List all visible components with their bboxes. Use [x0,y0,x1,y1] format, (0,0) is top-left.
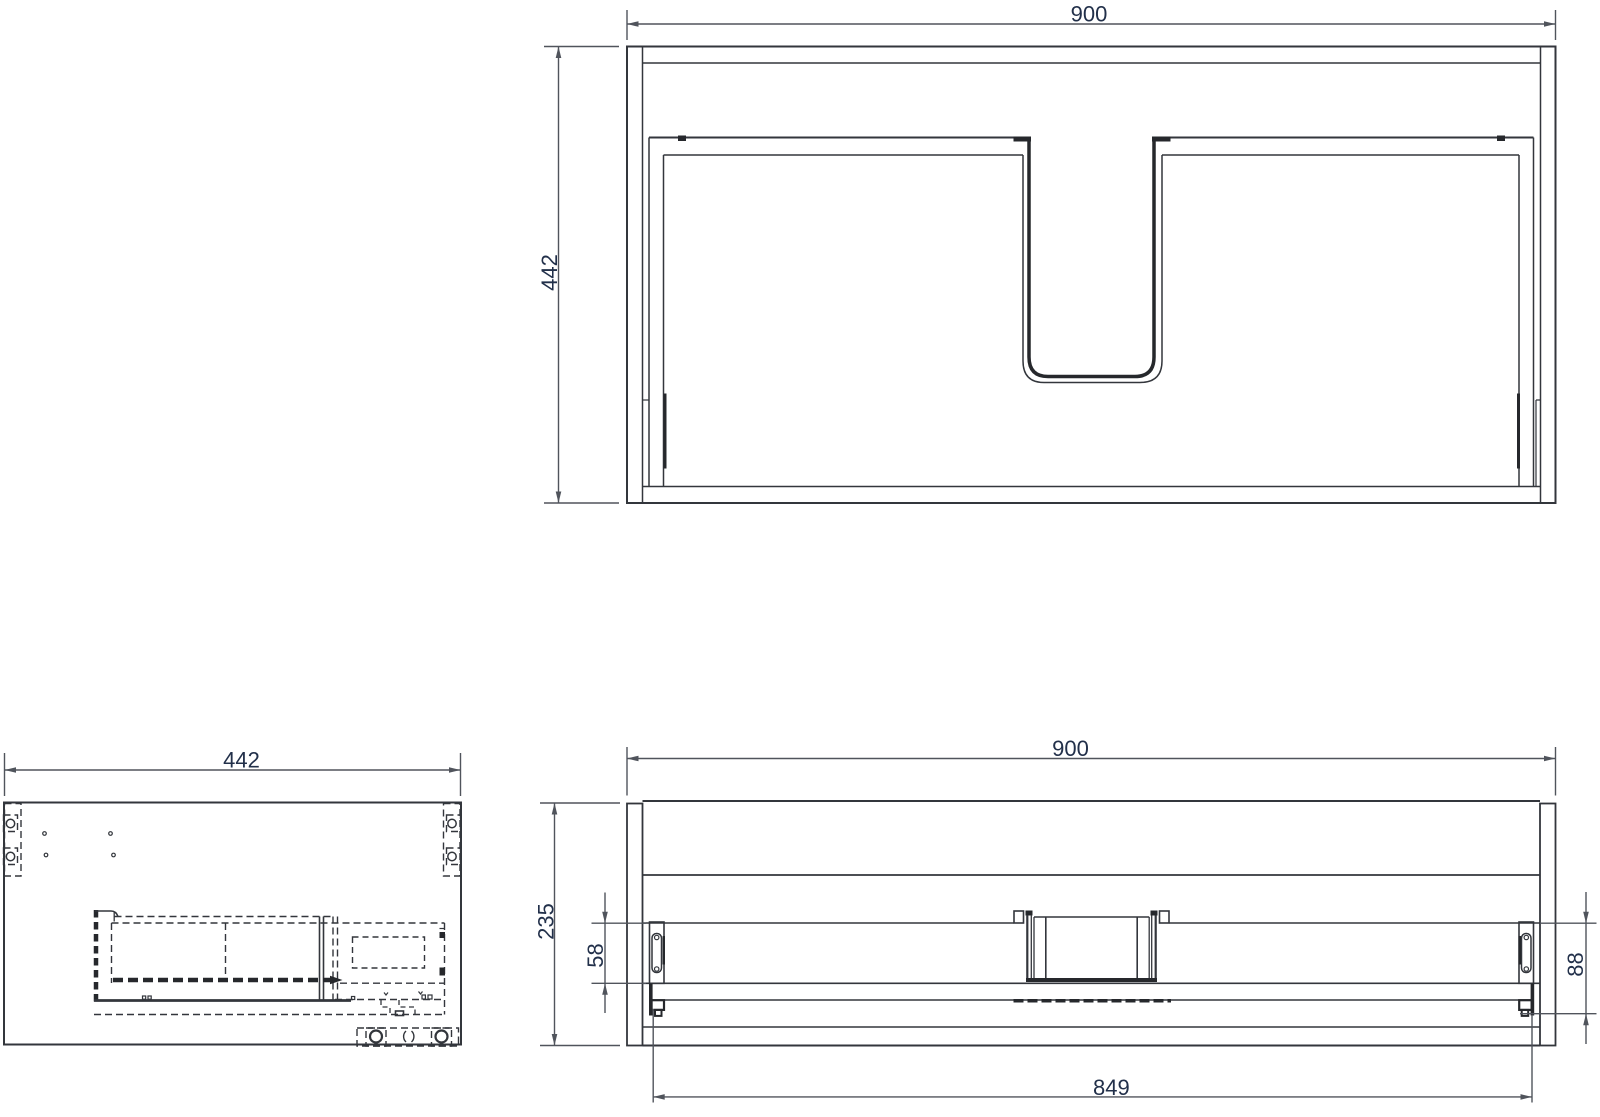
svg-text:900: 900 [1071,2,1108,27]
svg-text:442: 442 [537,254,562,291]
svg-text:58: 58 [583,943,608,967]
svg-text:235: 235 [534,903,559,940]
svg-text:88: 88 [1563,952,1588,976]
svg-text:849: 849 [1093,1075,1130,1100]
svg-text:900: 900 [1052,736,1089,761]
svg-text:442: 442 [223,748,260,773]
